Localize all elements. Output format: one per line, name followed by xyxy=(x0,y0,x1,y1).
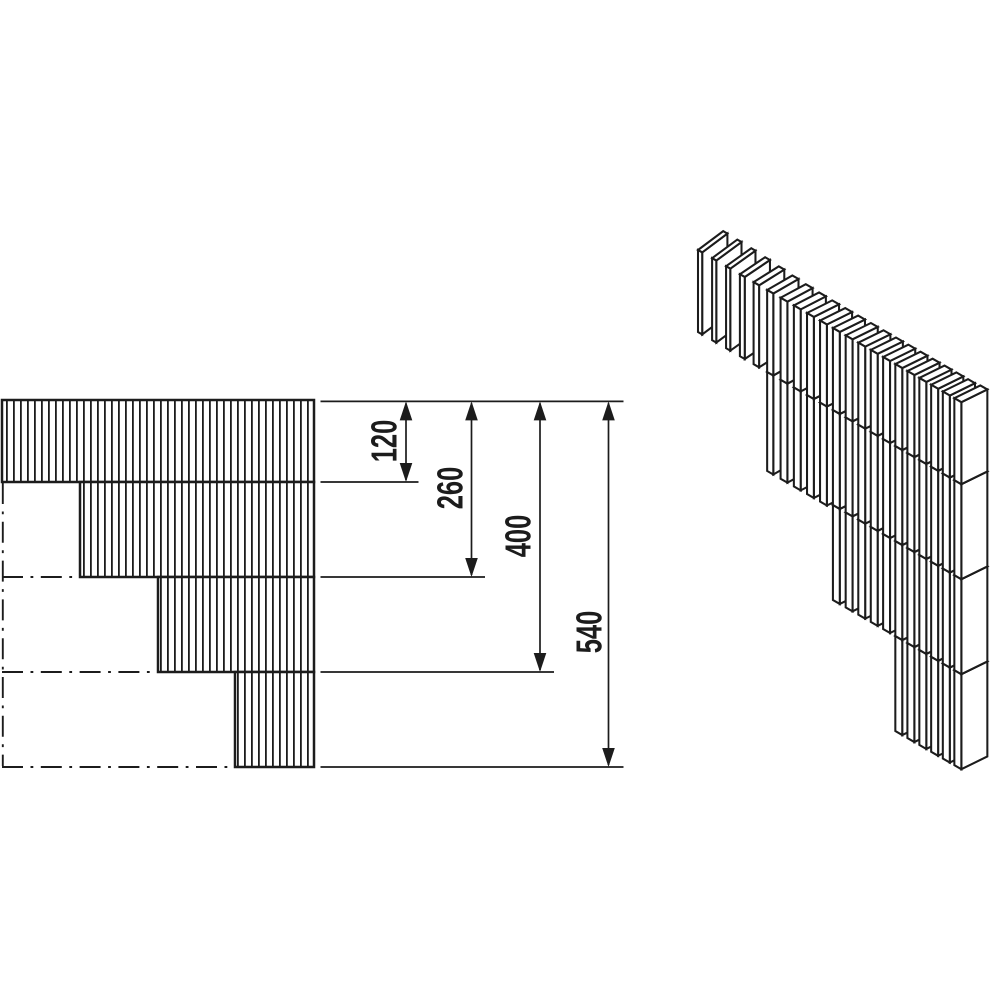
svg-text:120: 120 xyxy=(364,420,404,463)
svg-text:400: 400 xyxy=(498,515,538,558)
svg-text:260: 260 xyxy=(430,467,470,510)
svg-text:540: 540 xyxy=(569,611,609,654)
